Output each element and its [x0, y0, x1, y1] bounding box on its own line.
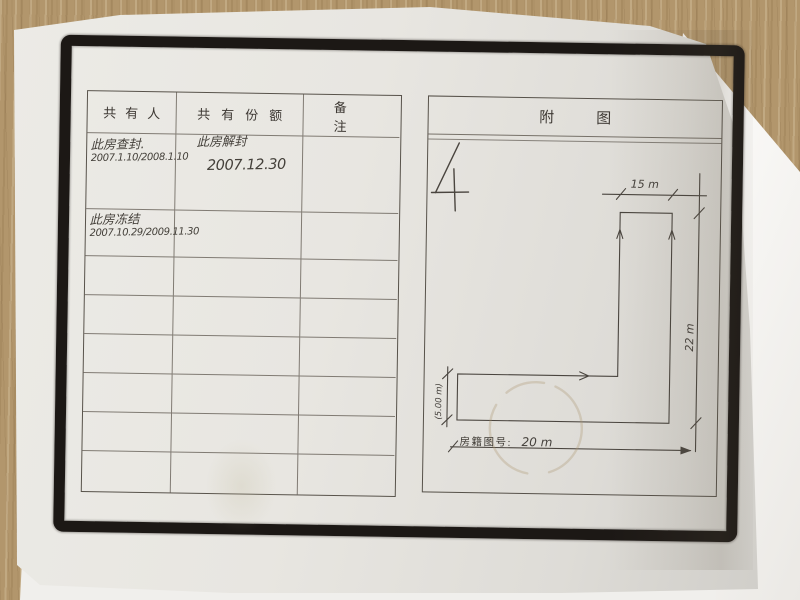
- dim-arrow-icon: [680, 446, 691, 454]
- entry-row2-owner: 此房冻结 2007.10.29/2009.11.30: [85, 209, 175, 257]
- handwriting-seal-dates: 2007.1.10/2008.1.10: [91, 151, 176, 165]
- empty-cell: [299, 377, 396, 418]
- empty-cell: [83, 373, 173, 413]
- empty-cell: [84, 295, 174, 335]
- dim-label-bottom: 20 m: [521, 435, 552, 449]
- header-remarks: 备注: [303, 94, 400, 138]
- certificate-black-frame: 共有人 共有份额 备注 此房查封. 2007.1.10/2008.1.10 此房…: [53, 35, 745, 543]
- empty-cell: [173, 297, 301, 338]
- empty-cell: [171, 453, 299, 494]
- page-number-4-glyph: [431, 143, 469, 212]
- entry-row2-remarks: [301, 212, 398, 261]
- empty-cell: [82, 412, 172, 452]
- handwriting-unseal-date: 2007.12.30: [207, 155, 303, 175]
- empty-cell: [82, 452, 172, 492]
- handwriting-seal-note: 此房查封.: [90, 136, 175, 153]
- empty-cell: [171, 414, 299, 455]
- entry-row1-remarks: [302, 136, 399, 213]
- empty-cell: [172, 375, 300, 416]
- stamp-ghost-circle: [489, 381, 582, 474]
- empty-cell: [84, 334, 174, 374]
- entry-row1-share: 此房解封 2007.12.30: [175, 134, 303, 212]
- dim-label-right: 22 m: [683, 323, 696, 351]
- handwriting-freeze-dates: 2007.10.29/2009.11.30: [90, 226, 175, 240]
- floor-plan-drawing: 15 m 22 m (5.00 m) 房籍图号: 20 m: [423, 134, 720, 495]
- coowner-table: 共有人 共有份额 备注 此房查封. 2007.1.10/2008.1.10 此房…: [81, 90, 402, 497]
- empty-cell: [300, 338, 397, 379]
- photo-of-certificate-page: 共有人 共有份额 备注 此房查封. 2007.1.10/2008.1.10 此房…: [0, 0, 800, 600]
- dim-line-left: [447, 367, 448, 427]
- header-share: 共有份额: [176, 92, 304, 136]
- figure-title: 附图: [497, 106, 653, 129]
- dim-label-top: 15 m: [631, 178, 659, 191]
- empty-cell: [300, 299, 397, 340]
- empty-cell: [298, 416, 395, 457]
- map-number-label: 房籍图号:: [460, 435, 513, 449]
- header-coowner: 共有人: [87, 91, 177, 134]
- empty-cell: [85, 256, 175, 296]
- handwriting-unseal-note: 此房解封: [196, 133, 302, 150]
- empty-cell: [301, 259, 398, 300]
- handwriting-freeze-note: 此房冻结: [89, 211, 174, 228]
- attached-figure-panel: 附图: [422, 95, 723, 497]
- entry-row2-share: [174, 210, 302, 259]
- empty-cell: [174, 257, 302, 298]
- entry-row1-owner: 此房查封. 2007.1.10/2008.1.10: [86, 133, 176, 210]
- dim-line-top: [603, 194, 707, 196]
- figure-header: 附图: [428, 96, 722, 139]
- empty-cell: [173, 336, 301, 377]
- dim-label-left: (5.00 m): [434, 383, 445, 420]
- empty-cell: [298, 455, 395, 496]
